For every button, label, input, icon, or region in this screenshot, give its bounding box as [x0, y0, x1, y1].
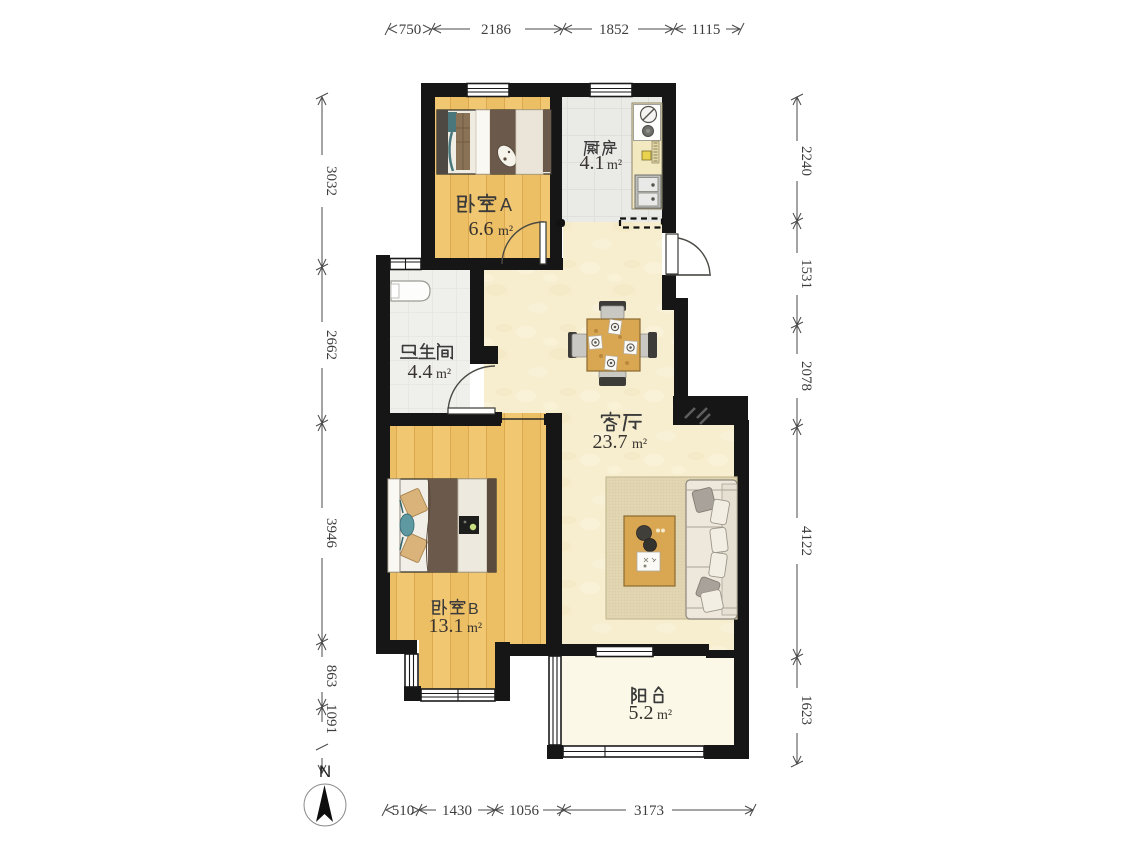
- svg-text:4122: 4122: [798, 526, 814, 556]
- svg-text:N: N: [319, 762, 331, 781]
- svg-text:2186: 2186: [481, 22, 512, 38]
- svg-text:m²: m²: [498, 224, 513, 239]
- svg-text:1852: 1852: [599, 22, 629, 38]
- svg-text:m²: m²: [632, 437, 647, 452]
- svg-text:4.4: 4.4: [408, 361, 433, 383]
- svg-text:1091: 1091: [323, 704, 339, 734]
- svg-text:3032: 3032: [323, 166, 339, 196]
- svg-text:750: 750: [399, 22, 422, 38]
- svg-text:1531: 1531: [798, 259, 814, 289]
- svg-text:m²: m²: [657, 708, 672, 723]
- svg-text:23.7: 23.7: [593, 431, 628, 453]
- svg-text:m²: m²: [607, 158, 622, 173]
- svg-text:3173: 3173: [634, 803, 664, 819]
- svg-text:1115: 1115: [692, 22, 721, 38]
- svg-text:13.1: 13.1: [429, 615, 464, 637]
- svg-text:1430: 1430: [442, 803, 472, 819]
- svg-text:m²: m²: [436, 367, 451, 382]
- svg-text:1623: 1623: [798, 695, 814, 725]
- svg-text:863: 863: [323, 665, 339, 688]
- svg-text:6.6: 6.6: [469, 218, 494, 240]
- svg-text:510: 510: [392, 803, 415, 819]
- svg-text:A: A: [500, 195, 512, 215]
- svg-text:5.2: 5.2: [629, 702, 654, 724]
- svg-text:2240: 2240: [798, 146, 814, 176]
- svg-text:2078: 2078: [798, 361, 814, 391]
- svg-text:m²: m²: [467, 621, 482, 636]
- svg-text:1056: 1056: [509, 803, 540, 819]
- svg-text:4.1: 4.1: [580, 152, 605, 174]
- svg-text:3946: 3946: [323, 518, 339, 549]
- svg-text:B: B: [468, 601, 479, 618]
- svg-text:2662: 2662: [323, 330, 339, 360]
